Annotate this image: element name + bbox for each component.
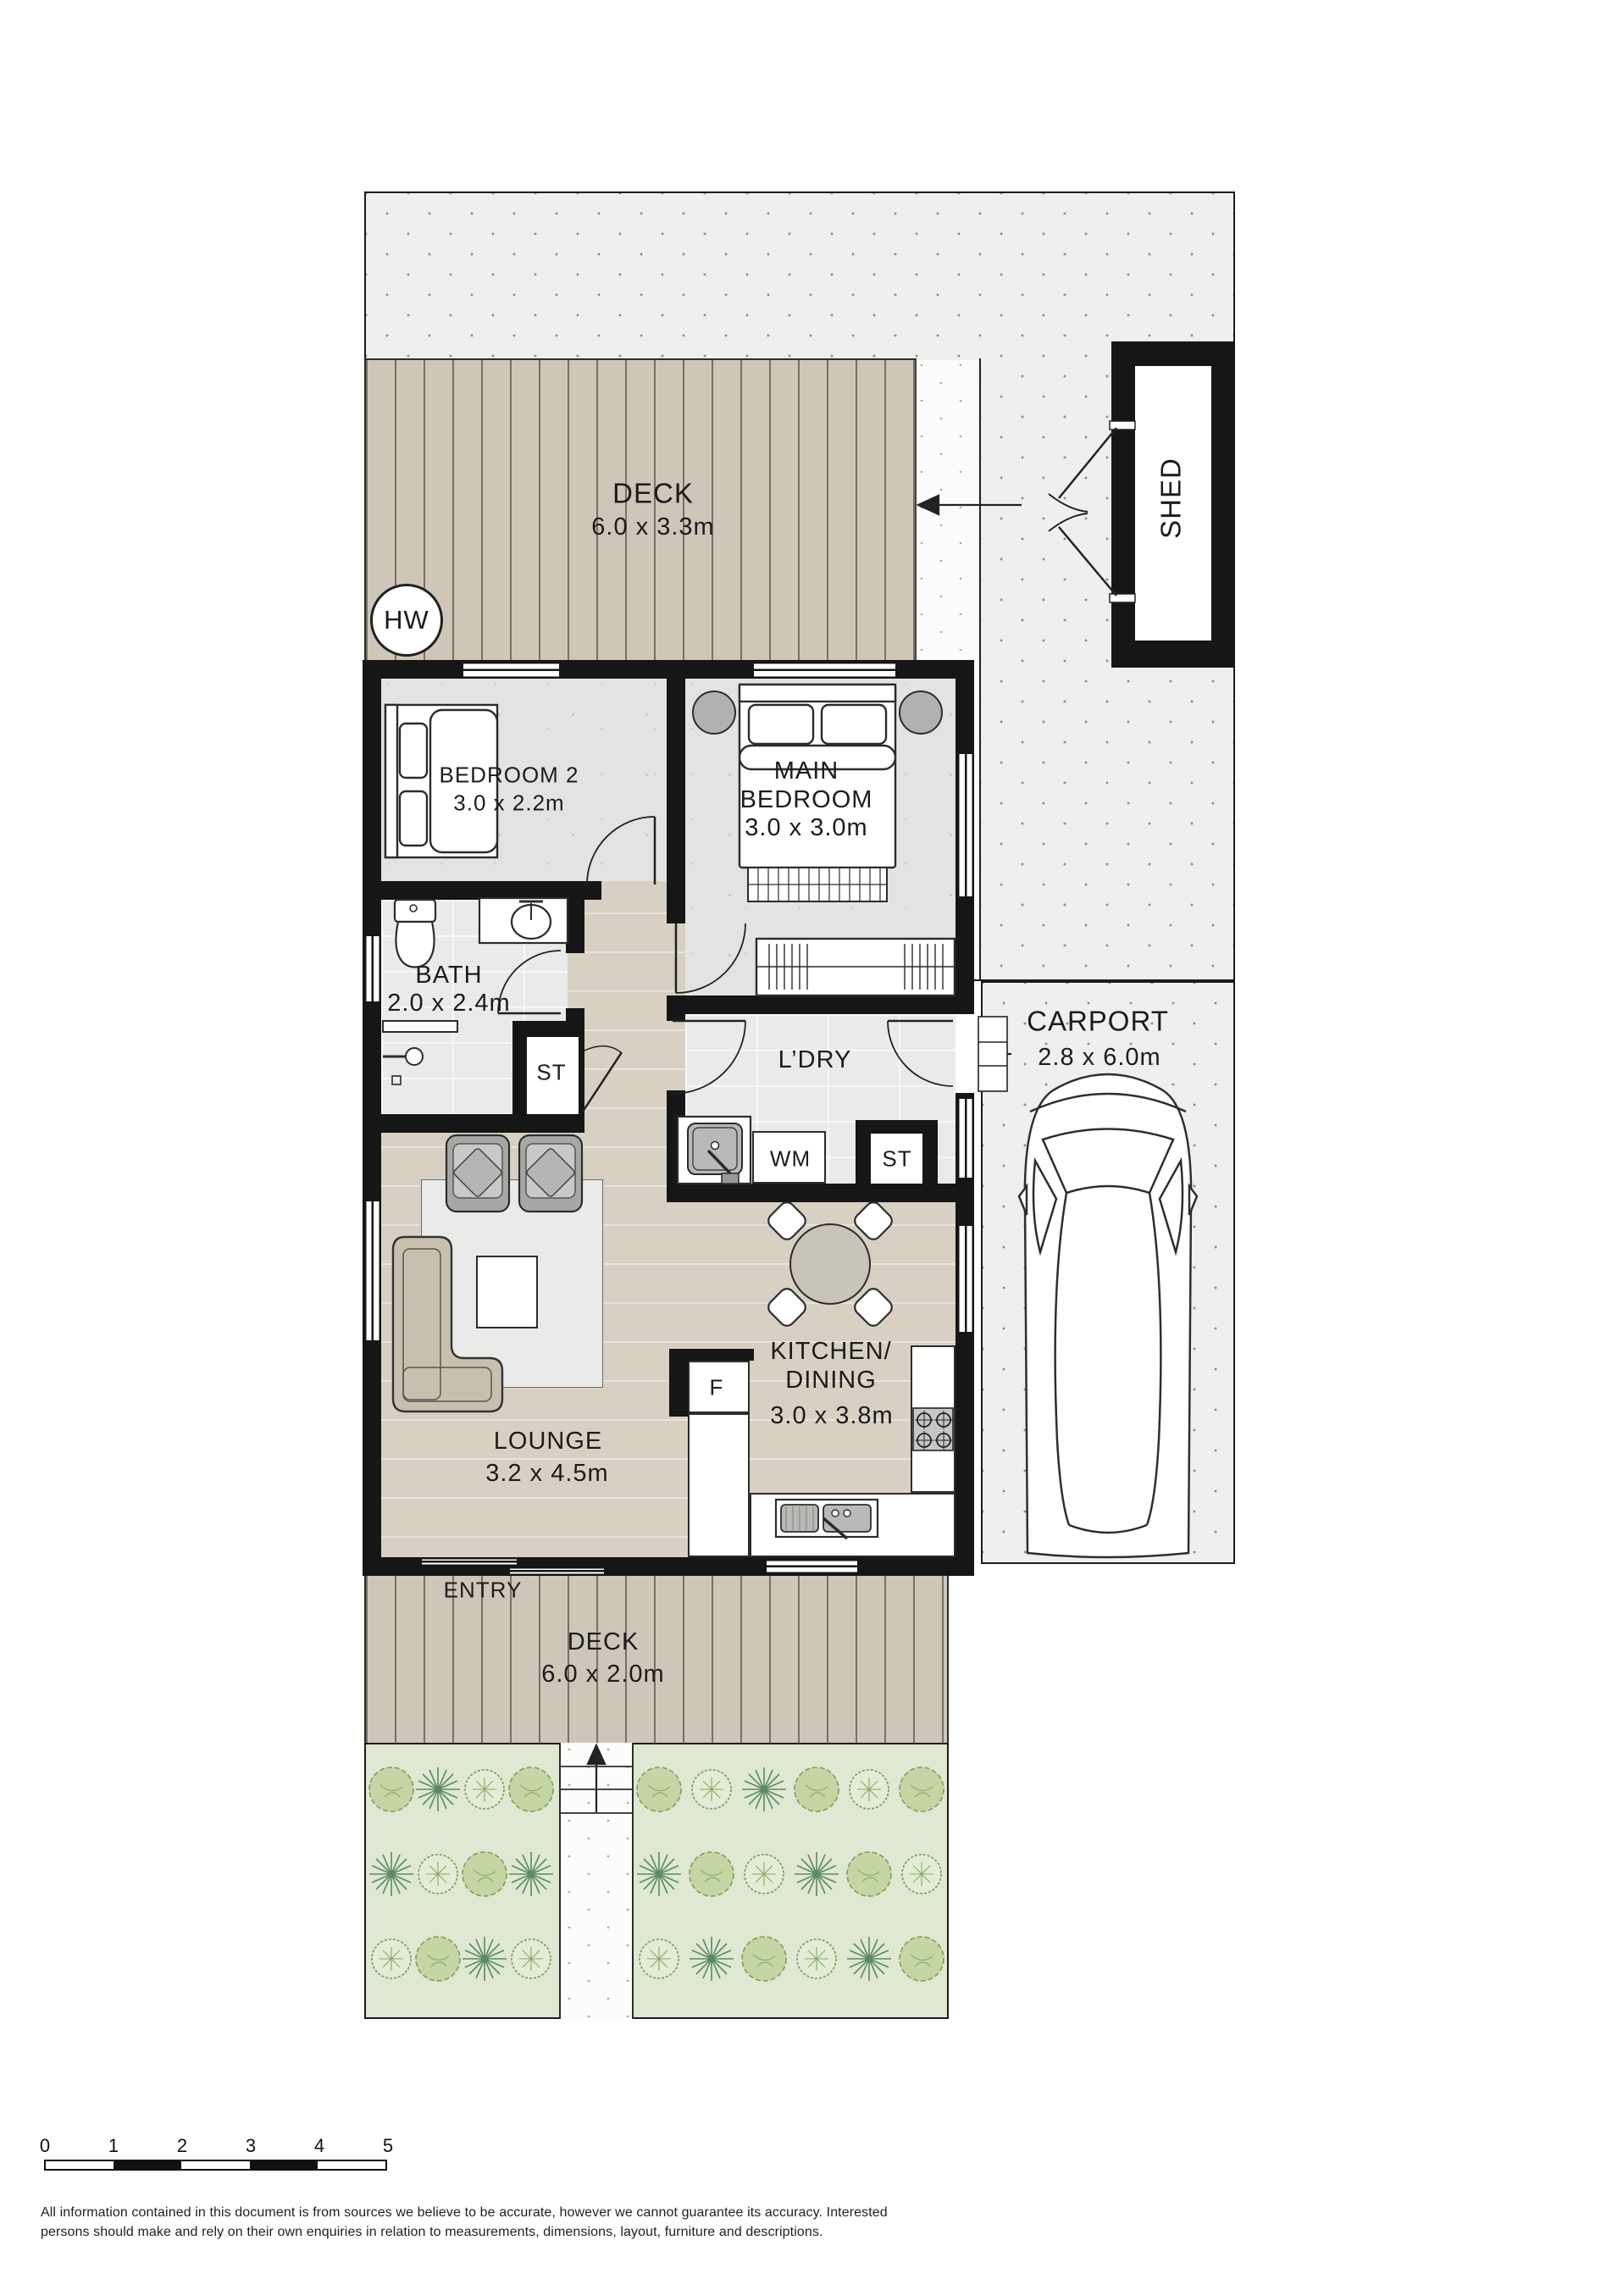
scale-bar	[44, 2160, 387, 2171]
kitchen-bench-bottom	[750, 1493, 956, 1557]
wall-laundry-left-a	[667, 1014, 685, 1021]
wall-bath-bottom	[381, 1114, 584, 1133]
laundry-external-door-gap	[956, 1014, 974, 1093]
lounge-label: LOUNGE	[494, 1427, 602, 1456]
scale-num-0: 0	[40, 2135, 50, 2157]
hot-water-label: HW	[384, 605, 429, 636]
window-lounge	[364, 1201, 381, 1340]
main-bedroom-dim: 3.0 x 3.0m	[745, 813, 867, 842]
wall-bedrooms-divider	[667, 679, 685, 923]
scale-seg-4	[250, 2161, 318, 2169]
wall-fridge-left	[669, 1352, 688, 1417]
scale-seg-3	[181, 2161, 249, 2169]
bath-label: BATH	[415, 961, 482, 990]
scale-seg-5	[318, 2161, 385, 2169]
bedside-table-left	[692, 690, 736, 735]
lounge-dim: 3.2 x 4.5m	[485, 1459, 608, 1488]
shed-label: SHED	[1155, 458, 1188, 539]
window-main-bedroom-top	[754, 662, 895, 679]
deck-bottom-label: DECK	[568, 1628, 640, 1656]
fridge-label: F	[710, 1375, 724, 1401]
kitchen-dim: 3.0 x 3.8m	[770, 1401, 893, 1430]
floorplan-page: { "labels": { "deck_top": {"name": "DECK…	[0, 0, 1623, 2296]
scale-num-5: 5	[383, 2135, 393, 2157]
scale-seg-1	[46, 2161, 114, 2169]
wall-laundry-bottom	[667, 1184, 956, 1202]
disclaimer-line-2: persons should make and rely on their ow…	[41, 2222, 823, 2242]
deck-top-dim: 6.0 x 3.3m	[591, 513, 714, 541]
window-dining	[957, 1226, 974, 1332]
wall-laundry-top	[667, 995, 956, 1014]
deck-top-label: DECK	[612, 478, 694, 511]
coffee-table	[476, 1256, 538, 1328]
bedroom2-dim: 3.0 x 2.2m	[453, 790, 564, 817]
kitchen-bench-right	[911, 1345, 956, 1493]
storage-laundry-label: ST	[882, 1146, 911, 1173]
garden-path	[559, 1743, 634, 2019]
entry-door-panel-1	[422, 1557, 517, 1567]
bath-dim: 2.0 x 2.4m	[387, 989, 510, 1018]
scale-seg-2	[114, 2161, 181, 2169]
window-bedroom2	[463, 662, 559, 679]
boundary-line	[979, 358, 981, 981]
garden	[364, 1743, 949, 2019]
main-bedroom-label: MAIN BEDROOM	[740, 757, 873, 814]
window-main-bedroom-side	[957, 754, 974, 896]
scale-num-2: 2	[177, 2135, 187, 2157]
deck-bottom-dim: 6.0 x 2.0m	[541, 1660, 664, 1689]
disclaimer-line-1: All information contained in this docume…	[41, 2203, 888, 2222]
dining-table	[789, 1223, 871, 1305]
wall-bedroom2-bottom	[381, 881, 601, 900]
window-bath	[364, 936, 381, 1001]
hot-water-unit: HW	[370, 584, 443, 657]
washing-machine-label: WM	[770, 1146, 811, 1173]
scale-num-1: 1	[108, 2135, 119, 2157]
scale-num-4: 4	[314, 2135, 324, 2157]
kitchen-bench-left	[688, 1413, 750, 1557]
bedside-table-right	[899, 690, 943, 735]
storage-bath-label: ST	[536, 1060, 566, 1086]
window-kitchen	[767, 1559, 857, 1574]
scale-num-3: 3	[246, 2135, 256, 2157]
entry-label: ENTRY	[444, 1578, 523, 1604]
entry-door-panel-2	[510, 1567, 604, 1576]
carport-dim: 2.8 x 6.0m	[1038, 1043, 1160, 1072]
wall-bath-right-upper	[566, 900, 584, 953]
window-laundry	[957, 1099, 974, 1178]
carport-label: CARPORT	[1027, 1006, 1169, 1039]
laundry-label: L’DRY	[778, 1045, 852, 1074]
wall-laundry-left-b	[667, 1090, 685, 1189]
kitchen-label: KITCHEN/ DINING	[770, 1337, 891, 1395]
bedroom2-label: BEDROOM 2	[439, 763, 579, 789]
